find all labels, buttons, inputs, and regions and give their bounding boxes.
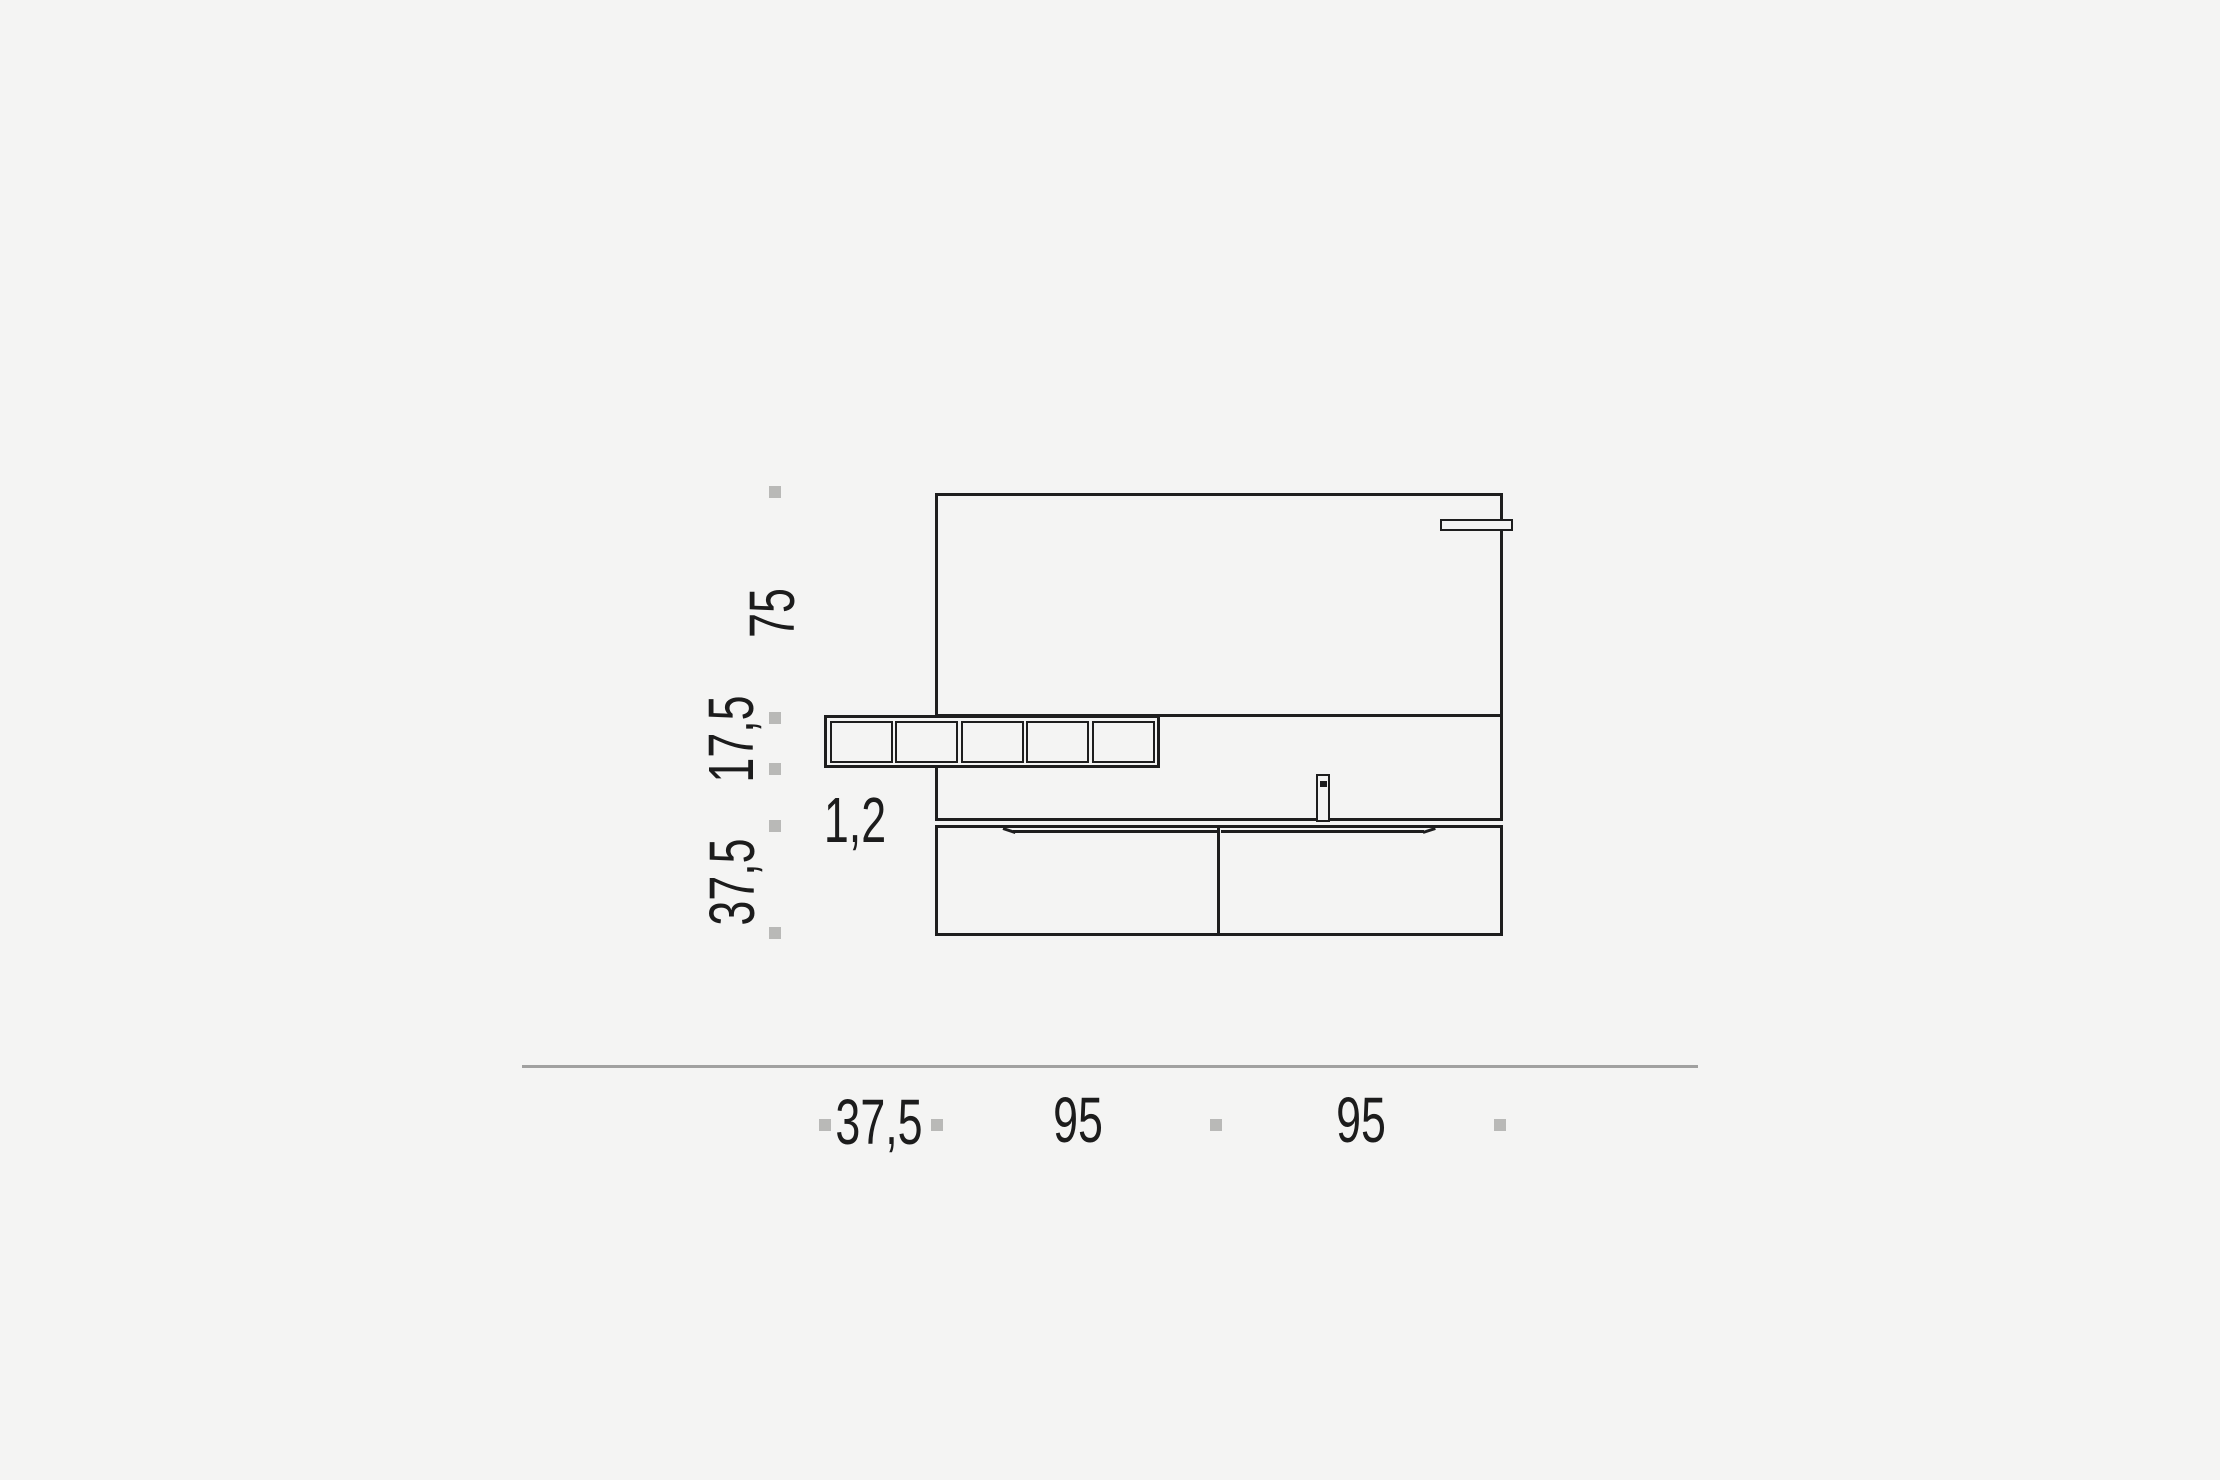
dimension-label-left-module-width: 95 xyxy=(1053,1088,1103,1152)
dimension-tick-counter xyxy=(769,820,781,832)
dimension-label-shelf-overhang: 37,5 xyxy=(835,1090,922,1154)
right-drawer-groove-line xyxy=(1221,830,1424,833)
shelf-compartment xyxy=(895,721,958,763)
open-shelf-row xyxy=(824,715,1160,768)
shelf-compartment xyxy=(1026,721,1089,763)
cabinet-center-divider-line xyxy=(1217,828,1220,933)
left-drawer-groove-line xyxy=(1013,830,1218,833)
dimension-tick-cabinet-left xyxy=(931,1119,943,1131)
dimension-tick-cabinet-bottom xyxy=(769,927,781,939)
dimension-tick-cabinet-middle xyxy=(1210,1119,1222,1131)
technical-drawing-canvas: 75 17,5 1,2 37,5 37,5 95 95 xyxy=(0,0,2220,1480)
dimension-tick-shelf-bottom xyxy=(769,763,781,775)
shelf-compartment xyxy=(1092,721,1155,763)
dimension-tick-mirror-top xyxy=(769,486,781,498)
dimension-label-shelf-height: 17,5 xyxy=(699,695,763,782)
light-bar xyxy=(1440,519,1513,531)
dimension-tick-shelf-top xyxy=(769,712,781,724)
countertop-slab xyxy=(935,818,1503,828)
dimension-label-counter-thickness: 1,2 xyxy=(824,788,886,852)
dimension-label-mirror-height: 75 xyxy=(740,588,804,638)
faucet-spout-detail xyxy=(1320,781,1327,788)
mirror-back-panel-outline xyxy=(935,493,1503,822)
dimension-tick-shelf-left xyxy=(819,1119,831,1131)
dimension-tick-cabinet-right xyxy=(1494,1119,1506,1131)
dimension-label-cabinet-height: 37,5 xyxy=(700,838,764,925)
shelf-compartment xyxy=(961,721,1024,763)
shelf-compartment xyxy=(830,721,893,763)
dimension-label-right-module-width: 95 xyxy=(1336,1088,1386,1152)
ground-baseline xyxy=(522,1065,1698,1068)
